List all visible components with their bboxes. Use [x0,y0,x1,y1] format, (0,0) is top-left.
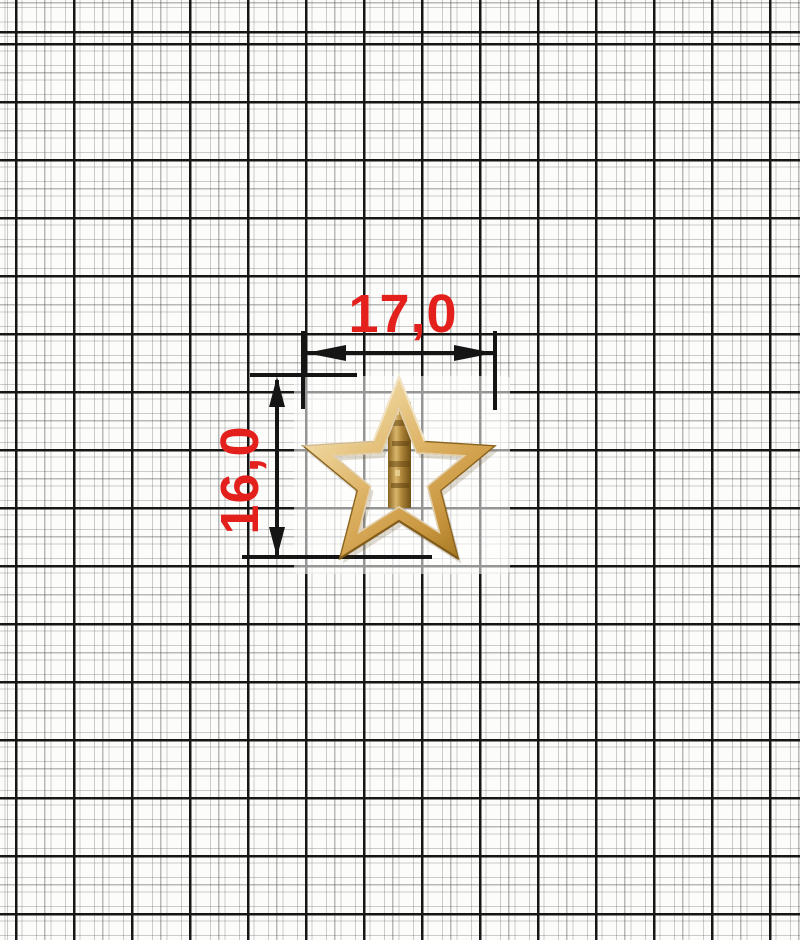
height-dimension-label: 16,0 [213,415,267,545]
arrowhead-left-icon [306,345,346,361]
width-dimension-label: 17,0 [330,287,476,341]
star-ornament [280,366,520,574]
graph-paper: 17,0 16,0 [0,0,800,940]
arrowhead-right-icon [454,345,494,361]
